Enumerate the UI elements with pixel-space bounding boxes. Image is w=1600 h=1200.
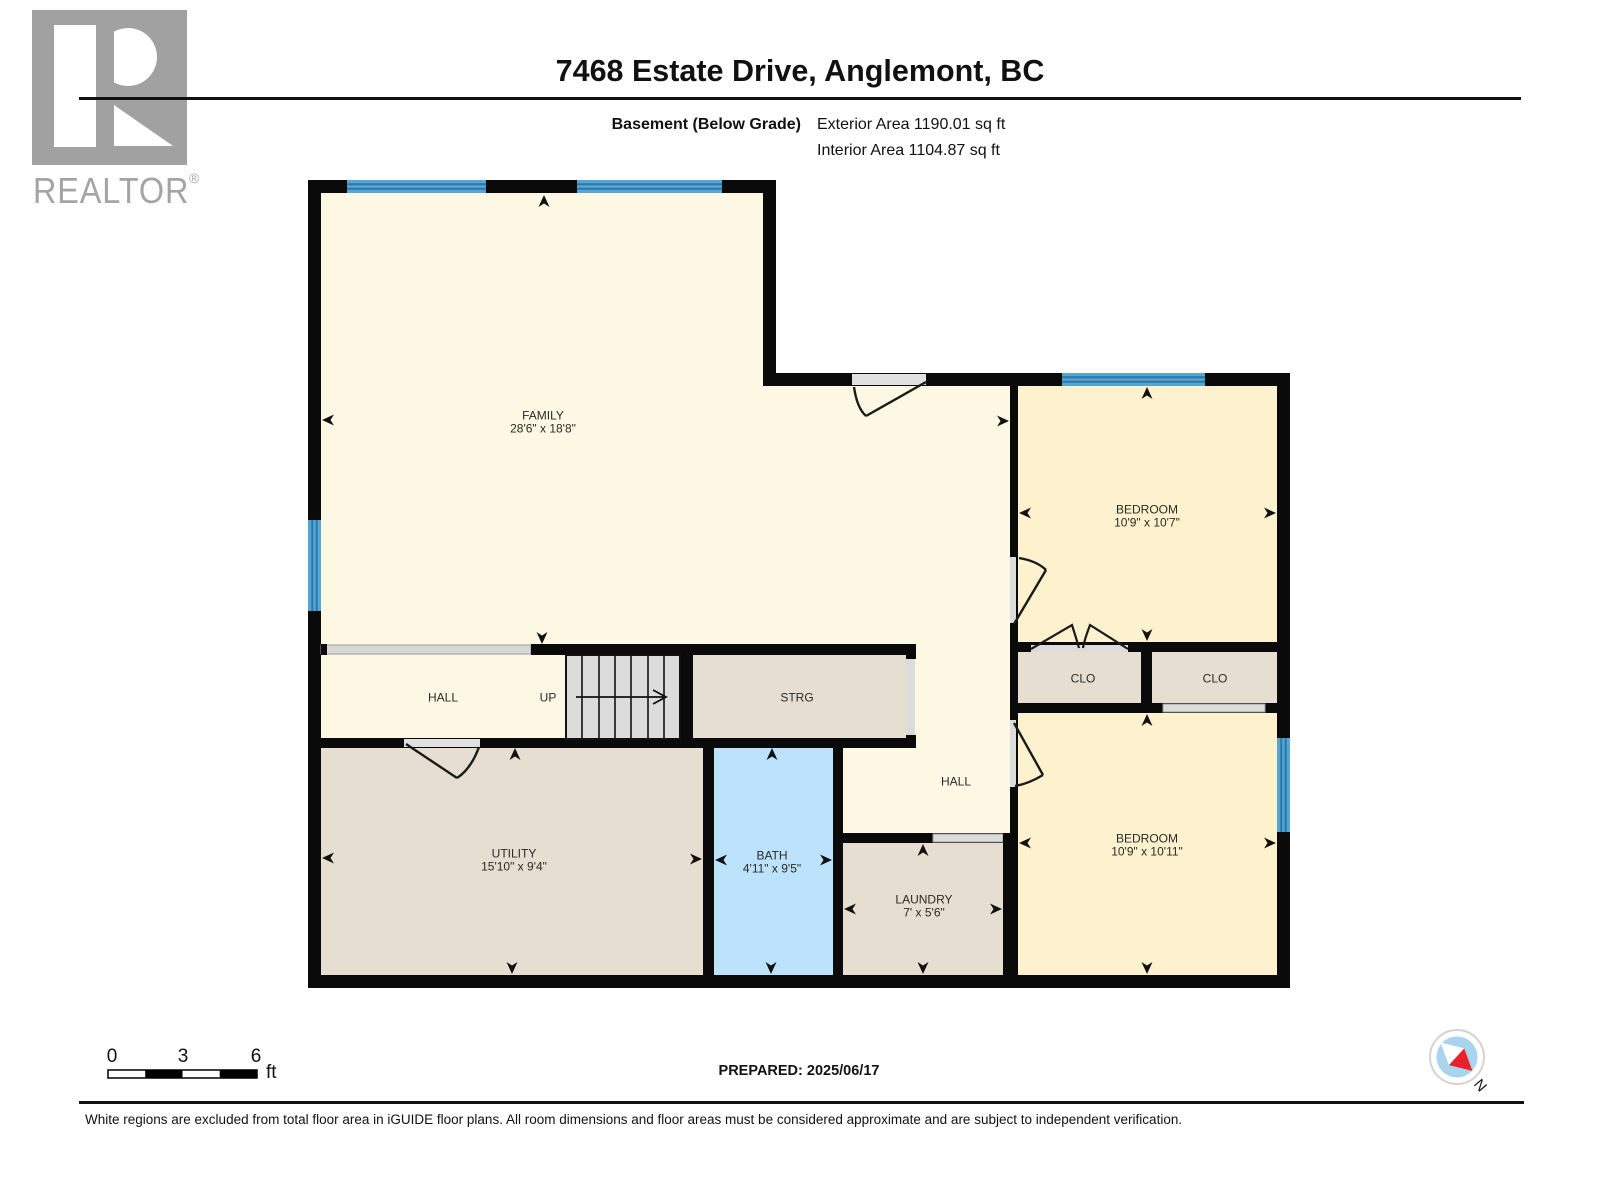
svg-text:7' x 5'6": 7' x 5'6" [903,906,945,920]
svg-text:4'11" x 9'5": 4'11" x 9'5" [743,862,801,876]
svg-text:BATH: BATH [756,849,787,863]
svg-text:3: 3 [178,1046,189,1067]
svg-text:BEDROOM: BEDROOM [1116,832,1178,846]
svg-text:10'9" x 10'11": 10'9" x 10'11" [1111,845,1183,859]
svg-text:7468 Estate Drive, Anglemont,: 7468 Estate Drive, Anglemont, BC [556,54,1045,88]
svg-text:Interior Area 1104.87 sq ft: Interior Area 1104.87 sq ft [817,142,1000,159]
svg-text:BEDROOM: BEDROOM [1116,503,1178,517]
svg-text:HALL: HALL [428,691,458,705]
svg-text:White regions are excluded fro: White regions are excluded from total fl… [85,1112,1182,1127]
svg-text:15'10" x 9'4": 15'10" x 9'4" [481,860,547,874]
svg-text:REALTOR: REALTOR [33,171,189,211]
svg-text:UP: UP [540,691,557,705]
svg-text:CLO: CLO [1203,672,1228,686]
svg-text:Exterior Area 1190.01 sq ft: Exterior Area 1190.01 sq ft [817,116,1006,133]
svg-text:STRG: STRG [780,691,813,705]
svg-text:CLO: CLO [1071,672,1096,686]
svg-text:28'6" x 18'8": 28'6" x 18'8" [510,422,576,436]
svg-text:LAUNDRY: LAUNDRY [895,893,952,907]
svg-text:ft: ft [266,1062,277,1083]
svg-text:Basement (Below Grade): Basement (Below Grade) [612,116,801,133]
svg-text:10'9" x 10'7": 10'9" x 10'7" [1114,516,1180,530]
svg-text:HALL: HALL [941,775,971,789]
svg-text:®: ® [189,170,200,186]
svg-text:FAMILY: FAMILY [522,409,564,423]
svg-text:UTILITY: UTILITY [492,847,537,861]
svg-text:6: 6 [251,1046,262,1067]
svg-text:PREPARED: 2025/06/17: PREPARED: 2025/06/17 [719,1063,880,1079]
svg-text:0: 0 [107,1046,118,1067]
